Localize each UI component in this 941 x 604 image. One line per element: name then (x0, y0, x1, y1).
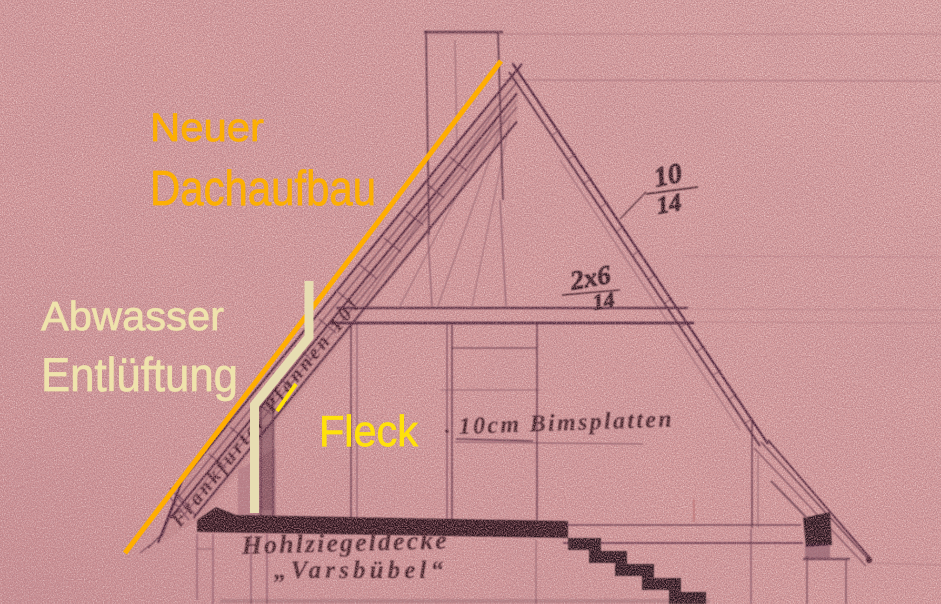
svg-text:Fleck: Fleck (319, 407, 419, 456)
svg-text:Abwasser: Abwasser (41, 293, 224, 339)
svg-text:Neuer: Neuer (150, 106, 264, 150)
svg-text:Dachaufbau: Dachaufbau (150, 162, 376, 216)
svg-text:Entlüftung: Entlüftung (41, 348, 238, 401)
